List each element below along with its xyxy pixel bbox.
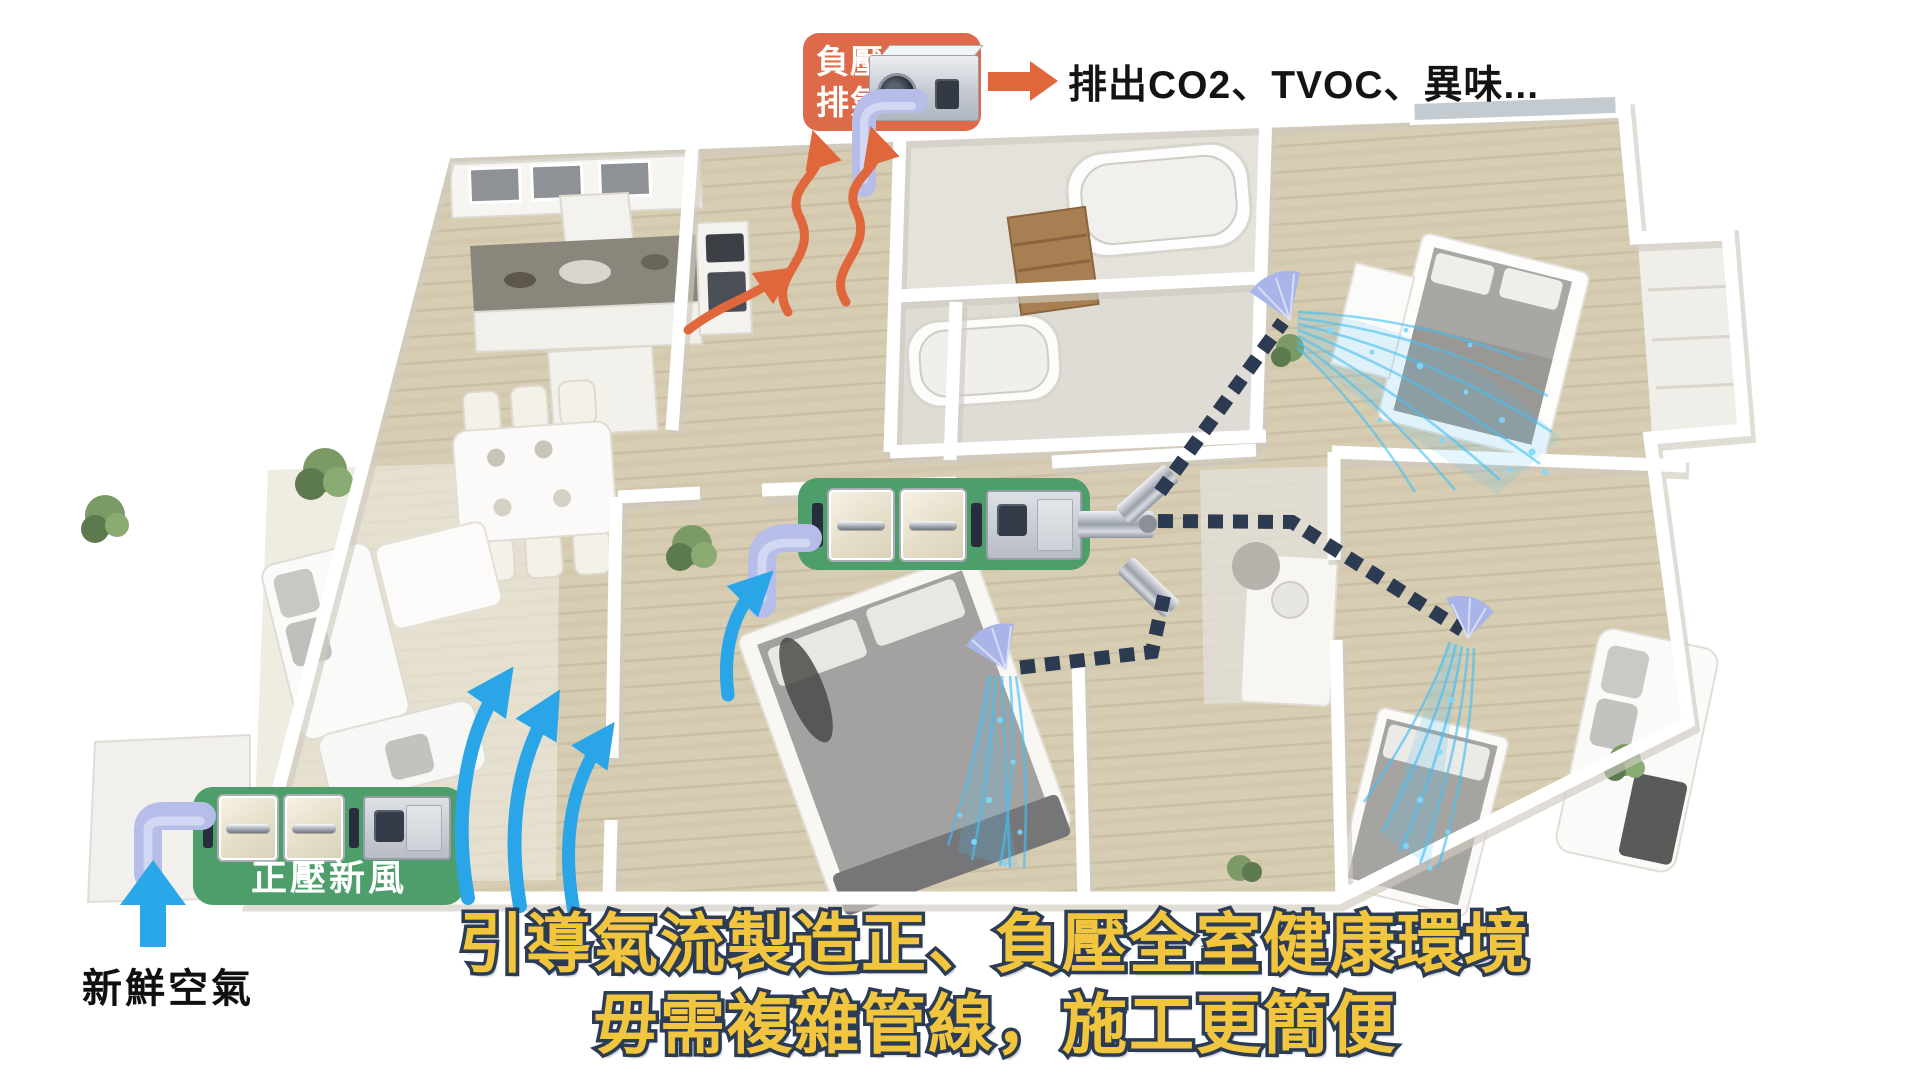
ventilation-diagram: 負壓 排氣 正壓新風 xyxy=(0,0,1920,1080)
exhaust-direction-arrow xyxy=(988,61,1058,101)
exhaust-output-text: 排出CO2、TVOC、異味... xyxy=(1068,54,1539,110)
headline: 引導氣流製造正、負壓全室健康環境 毋需複雜管線，施工更簡便 xyxy=(35,904,1920,1066)
headline-line1: 引導氣流製造正、負壓全室健康環境 xyxy=(35,904,1920,984)
headline-line2: 毋需複雜管線，施工更簡便 xyxy=(35,984,1920,1066)
arrow-head-icon xyxy=(1030,61,1058,101)
arrow-up-icon xyxy=(120,860,186,905)
